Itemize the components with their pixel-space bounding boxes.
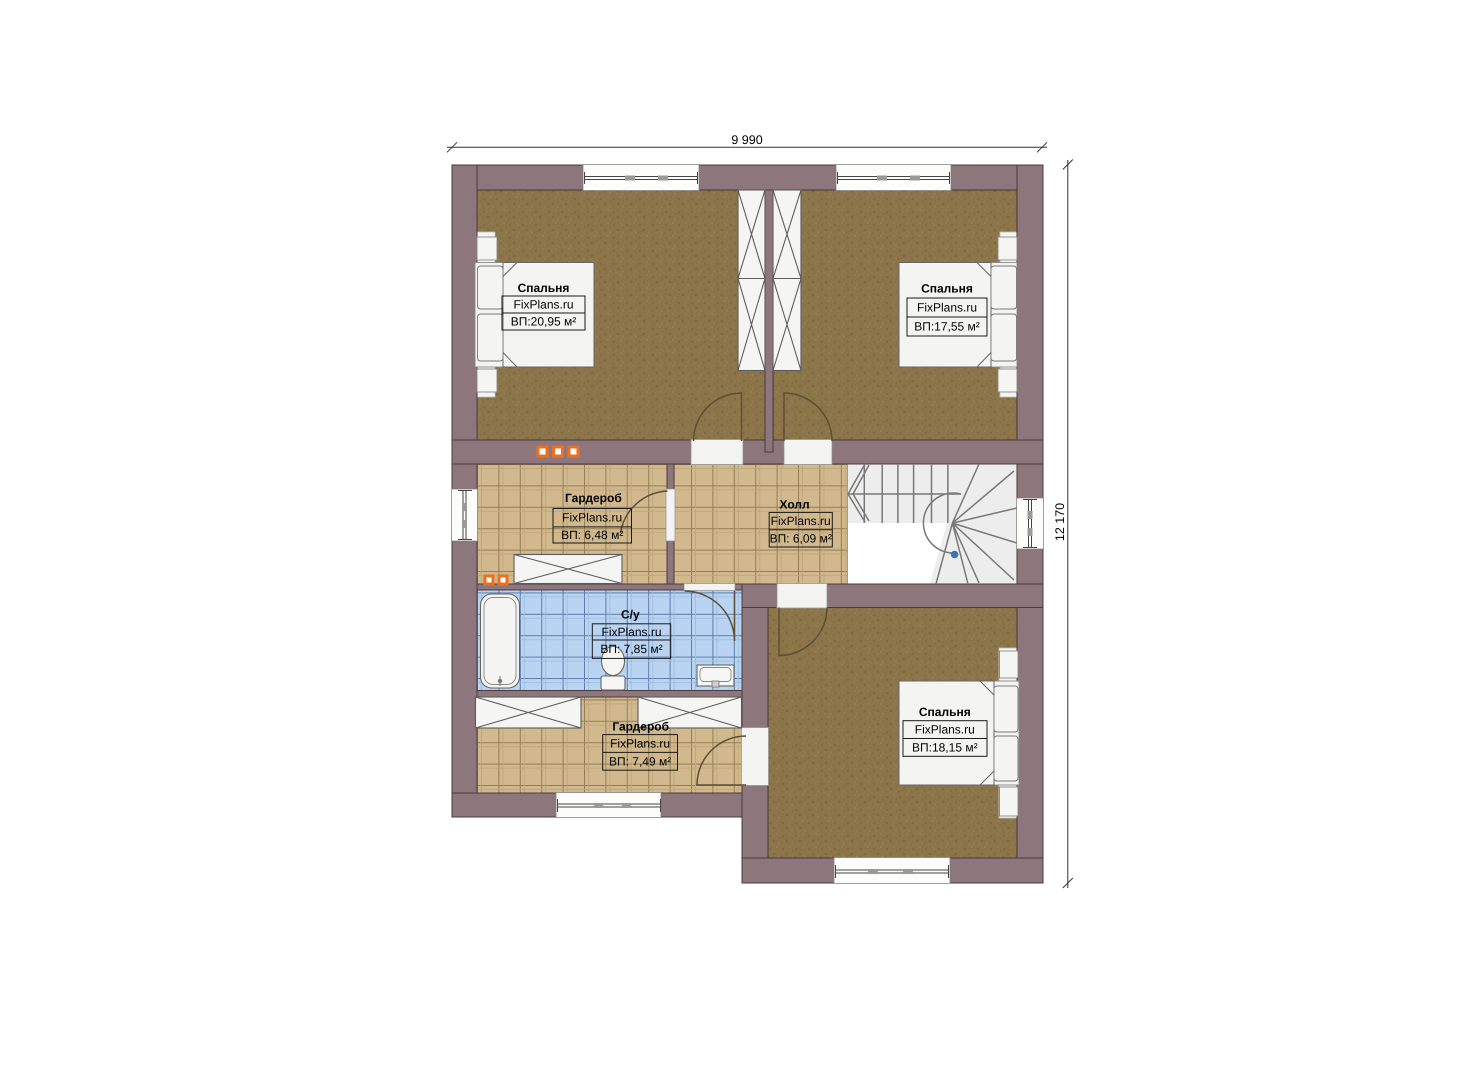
- svg-text:ВП:18,15 м²: ВП:18,15 м²: [912, 741, 978, 755]
- svg-text:ВП: 7,85 м²: ВП: 7,85 м²: [600, 642, 662, 656]
- svg-text:ВП:20,95 м²: ВП:20,95 м²: [511, 315, 577, 329]
- svg-text:С/у: С/у: [621, 608, 640, 622]
- svg-text:Спальня: Спальня: [518, 281, 570, 295]
- svg-text:Холл: Холл: [780, 497, 810, 511]
- svg-text:Гардероб: Гардероб: [565, 491, 622, 505]
- svg-text:FixPlans.ru: FixPlans.ru: [562, 511, 622, 525]
- svg-text:9 990: 9 990: [731, 133, 762, 147]
- svg-text:FixPlans.ru: FixPlans.ru: [610, 737, 670, 751]
- svg-text:FixPlans.ru: FixPlans.ru: [513, 298, 573, 312]
- svg-text:FixPlans.ru: FixPlans.ru: [917, 301, 977, 315]
- svg-text:FixPlans.ru: FixPlans.ru: [771, 514, 831, 528]
- svg-text:12 170: 12 170: [1053, 503, 1067, 541]
- svg-text:ВП: 7,49 м²: ВП: 7,49 м²: [609, 754, 671, 768]
- svg-text:ВП:17,55 м²: ВП:17,55 м²: [914, 320, 980, 334]
- svg-text:ВП: 6,48 м²: ВП: 6,48 м²: [561, 528, 623, 542]
- svg-text:FixPlans.ru: FixPlans.ru: [601, 625, 661, 639]
- svg-text:FixPlans.ru: FixPlans.ru: [915, 723, 975, 737]
- svg-text:ВП: 6,09 м²: ВП: 6,09 м²: [770, 531, 832, 545]
- svg-text:Спальня: Спальня: [921, 282, 973, 296]
- svg-text:Гардероб: Гардероб: [612, 719, 669, 733]
- svg-text:Спальня: Спальня: [919, 705, 971, 719]
